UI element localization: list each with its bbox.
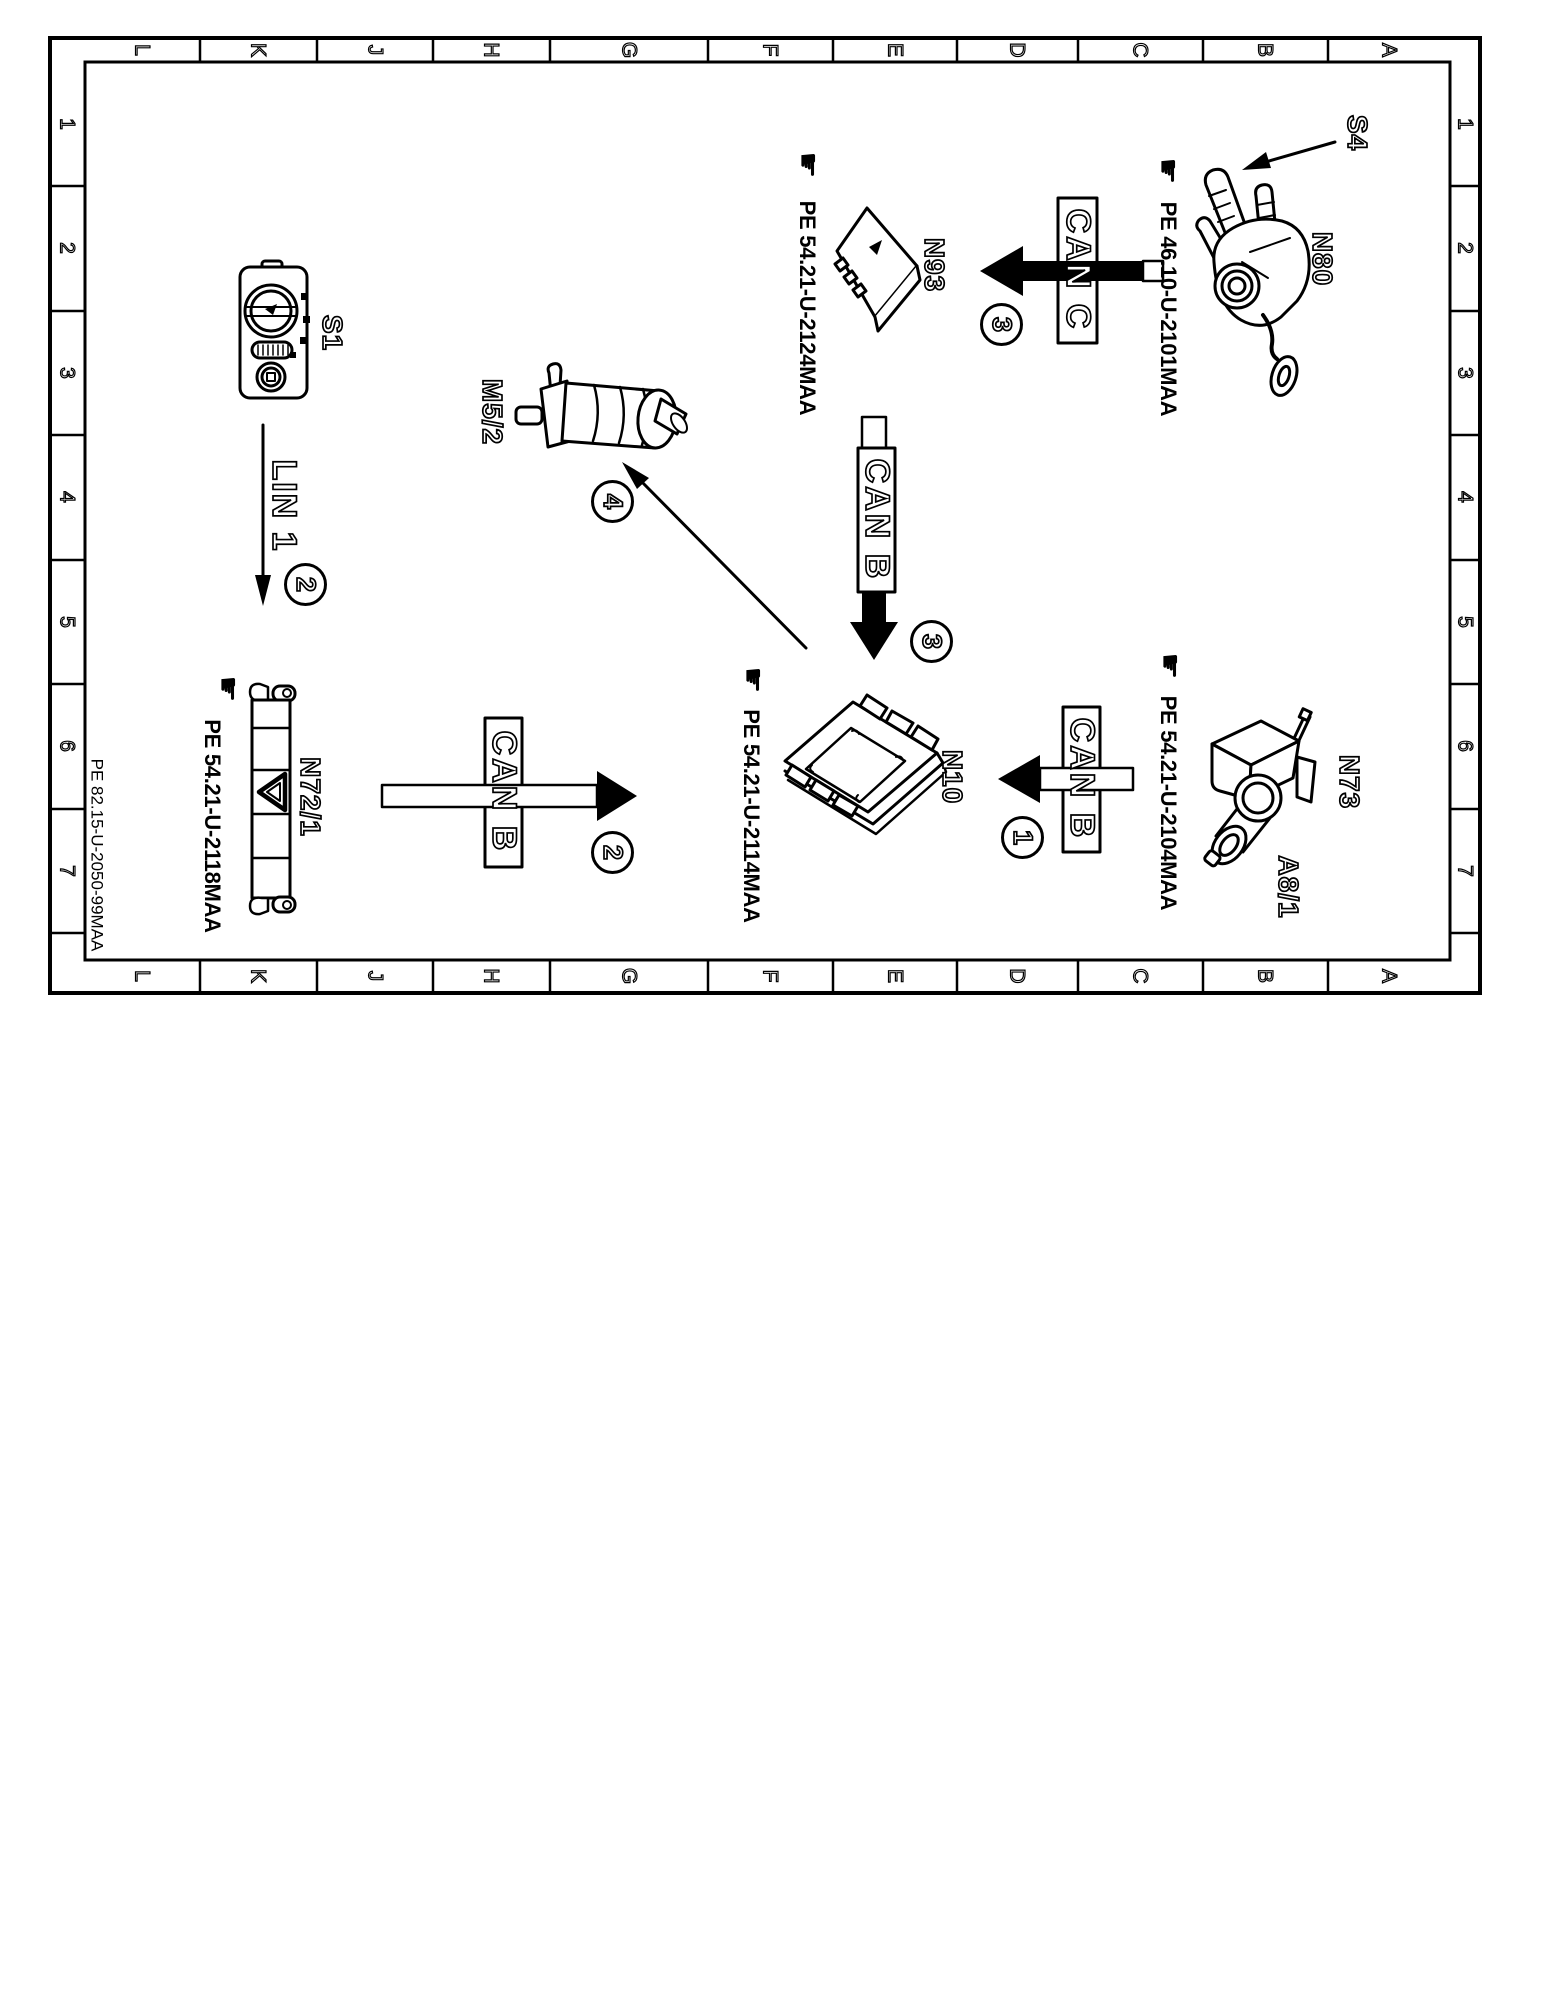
step-number: 4 [597,494,628,509]
pointing-hand-icon: ☛ [737,667,767,694]
n93-module-drawing [835,208,920,331]
grid-letter: E [885,43,906,57]
label-s1: S1 [318,315,346,351]
grid-number: 6 [1455,740,1476,752]
grid-letter: A [1379,43,1400,57]
grid-number: 4 [57,491,78,503]
grid-letter: D [1007,968,1028,983]
label-n80: N80 [1308,232,1336,286]
step-badge: 2 [591,831,634,874]
grid-number: 1 [57,118,78,130]
pump-diagonal-arrow [622,462,806,648]
label-n72-1: N72/1 [296,757,324,837]
grid-letter: B [1255,969,1276,983]
pe-ref-n73: PE 54.21-U-2104MAA [1157,696,1179,911]
grid-letter: L [132,44,153,56]
n10-module-drawing [785,695,946,834]
grid-number: 1 [1455,118,1476,130]
step-badge: 4 [591,480,634,523]
grid-letter: L [132,970,153,982]
grid-number: 3 [57,367,78,379]
grid-letter: F [760,970,781,983]
grid-letter: J [365,45,386,56]
schematic-svg [0,0,1545,2000]
pointing-hand-icon: ☛ [1152,158,1182,185]
pe-ref-n80: PE 46.10-U-2101MAA [1157,202,1179,417]
grid-number: 7 [1455,865,1476,877]
label-m5-2: M5/2 [478,379,506,445]
grid-letter: H [481,968,502,983]
grid-letter: C [1130,42,1151,57]
schematic-page: { "sheet": { "doc_code": "PE 82.15-U-205… [0,0,1545,2000]
pe-ref-n72-1: PE 54.21-U-2118MAA [201,719,223,932]
bus-label-lin-1: LIN 1 [267,459,301,552]
step-number: 2 [597,845,628,860]
m5-2-pump-drawing [516,364,690,450]
step-number: 2 [290,577,321,592]
label-a8-1: A8/1 [1274,855,1302,918]
label-n10: N10 [938,750,966,804]
step-number: 1 [1007,830,1038,845]
grid-letter: K [248,969,269,983]
pe-ref-n10: PE 54.21-U-2114MAA [740,709,762,922]
step-number: 3 [986,317,1017,332]
n80-combination-switch-drawing [1197,169,1309,398]
grid-letter: E [885,969,906,983]
grid-number: 7 [57,865,78,877]
grid-letter: H [481,42,502,57]
step-badge: 3 [910,620,953,663]
pointing-hand-icon: ☛ [212,676,242,703]
grid-number: 3 [1455,367,1476,379]
step-badge: 2 [284,563,327,606]
grid-number: 6 [57,740,78,752]
bus-label-can-b: CAN B [1065,718,1099,841]
grid-letter: C [1130,968,1151,983]
sheet-doc-code: PE 82.15-U-2050-99MAA [89,759,106,952]
grid-number: 5 [57,616,78,628]
grid-letter: F [760,44,781,57]
grid-letter: D [1007,42,1028,57]
step-badge: 1 [1001,816,1044,859]
grid-letter: G [619,968,640,984]
bus-label-can-c: CAN C [1061,209,1095,332]
grid-letter: A [1379,969,1400,983]
pointing-hand-icon: ☛ [792,152,822,179]
pointing-hand-icon: ☛ [1154,653,1184,680]
s4-pointer-arrow [1242,142,1335,170]
grid-number: 5 [1455,616,1476,628]
step-badge: 3 [980,303,1023,346]
grid-letter: B [1255,43,1276,57]
label-n93: N93 [920,238,948,292]
grid-letter: G [619,42,640,58]
n72-1-switch-drawing [250,684,295,914]
grid-letter: K [248,43,269,57]
grid-number: 4 [1455,491,1476,503]
bus-label-can-b: CAN B [860,459,894,582]
bus-label-can-b: CAN B [487,731,521,854]
step-number: 3 [916,634,947,649]
grid-number: 2 [57,242,78,254]
label-n73: N73 [1335,755,1363,809]
grid-number: 2 [1455,242,1476,254]
n73-module-drawing [1204,709,1315,870]
s1-switch-drawing [240,261,310,398]
grid-letter: J [365,971,386,982]
pe-ref-n93: PE 54.21-U-2124MAA [796,201,818,416]
label-s4: S4 [1343,115,1371,151]
